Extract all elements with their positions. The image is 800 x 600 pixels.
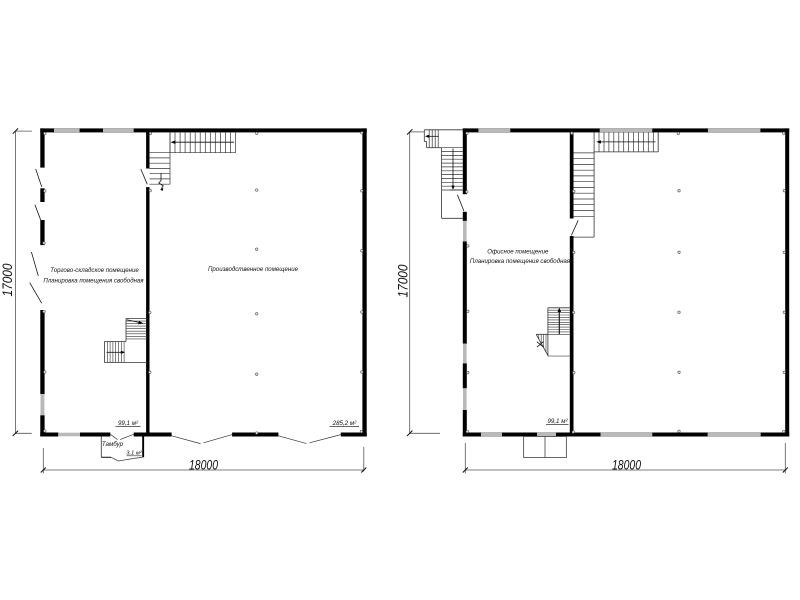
svg-text:Торгово-складское помещение: Торгово-складское помещение (50, 267, 139, 274)
svg-text:17000: 17000 (0, 263, 15, 296)
svg-text:Офисное помещение: Офисное помещение (487, 249, 549, 256)
svg-text:18000: 18000 (612, 456, 641, 472)
svg-text:3,1 м²: 3,1 м² (126, 450, 143, 456)
svg-text:99,1 м²: 99,1 м² (547, 418, 568, 425)
svg-text:Планировка помещения свободная: Планировка помещения свободная (43, 278, 144, 285)
svg-text:Тамбур: Тамбур (102, 441, 124, 448)
svg-text:Производственное помещение: Производственное помещение (208, 266, 299, 273)
svg-text:99,1 м²: 99,1 м² (118, 420, 139, 427)
svg-text:285,2 м²: 285,2 м² (332, 420, 357, 427)
svg-text:18000: 18000 (189, 456, 218, 472)
svg-text:Планировка помещения свободная: Планировка помещения свободная (470, 258, 571, 265)
svg-text:17000: 17000 (394, 264, 410, 297)
